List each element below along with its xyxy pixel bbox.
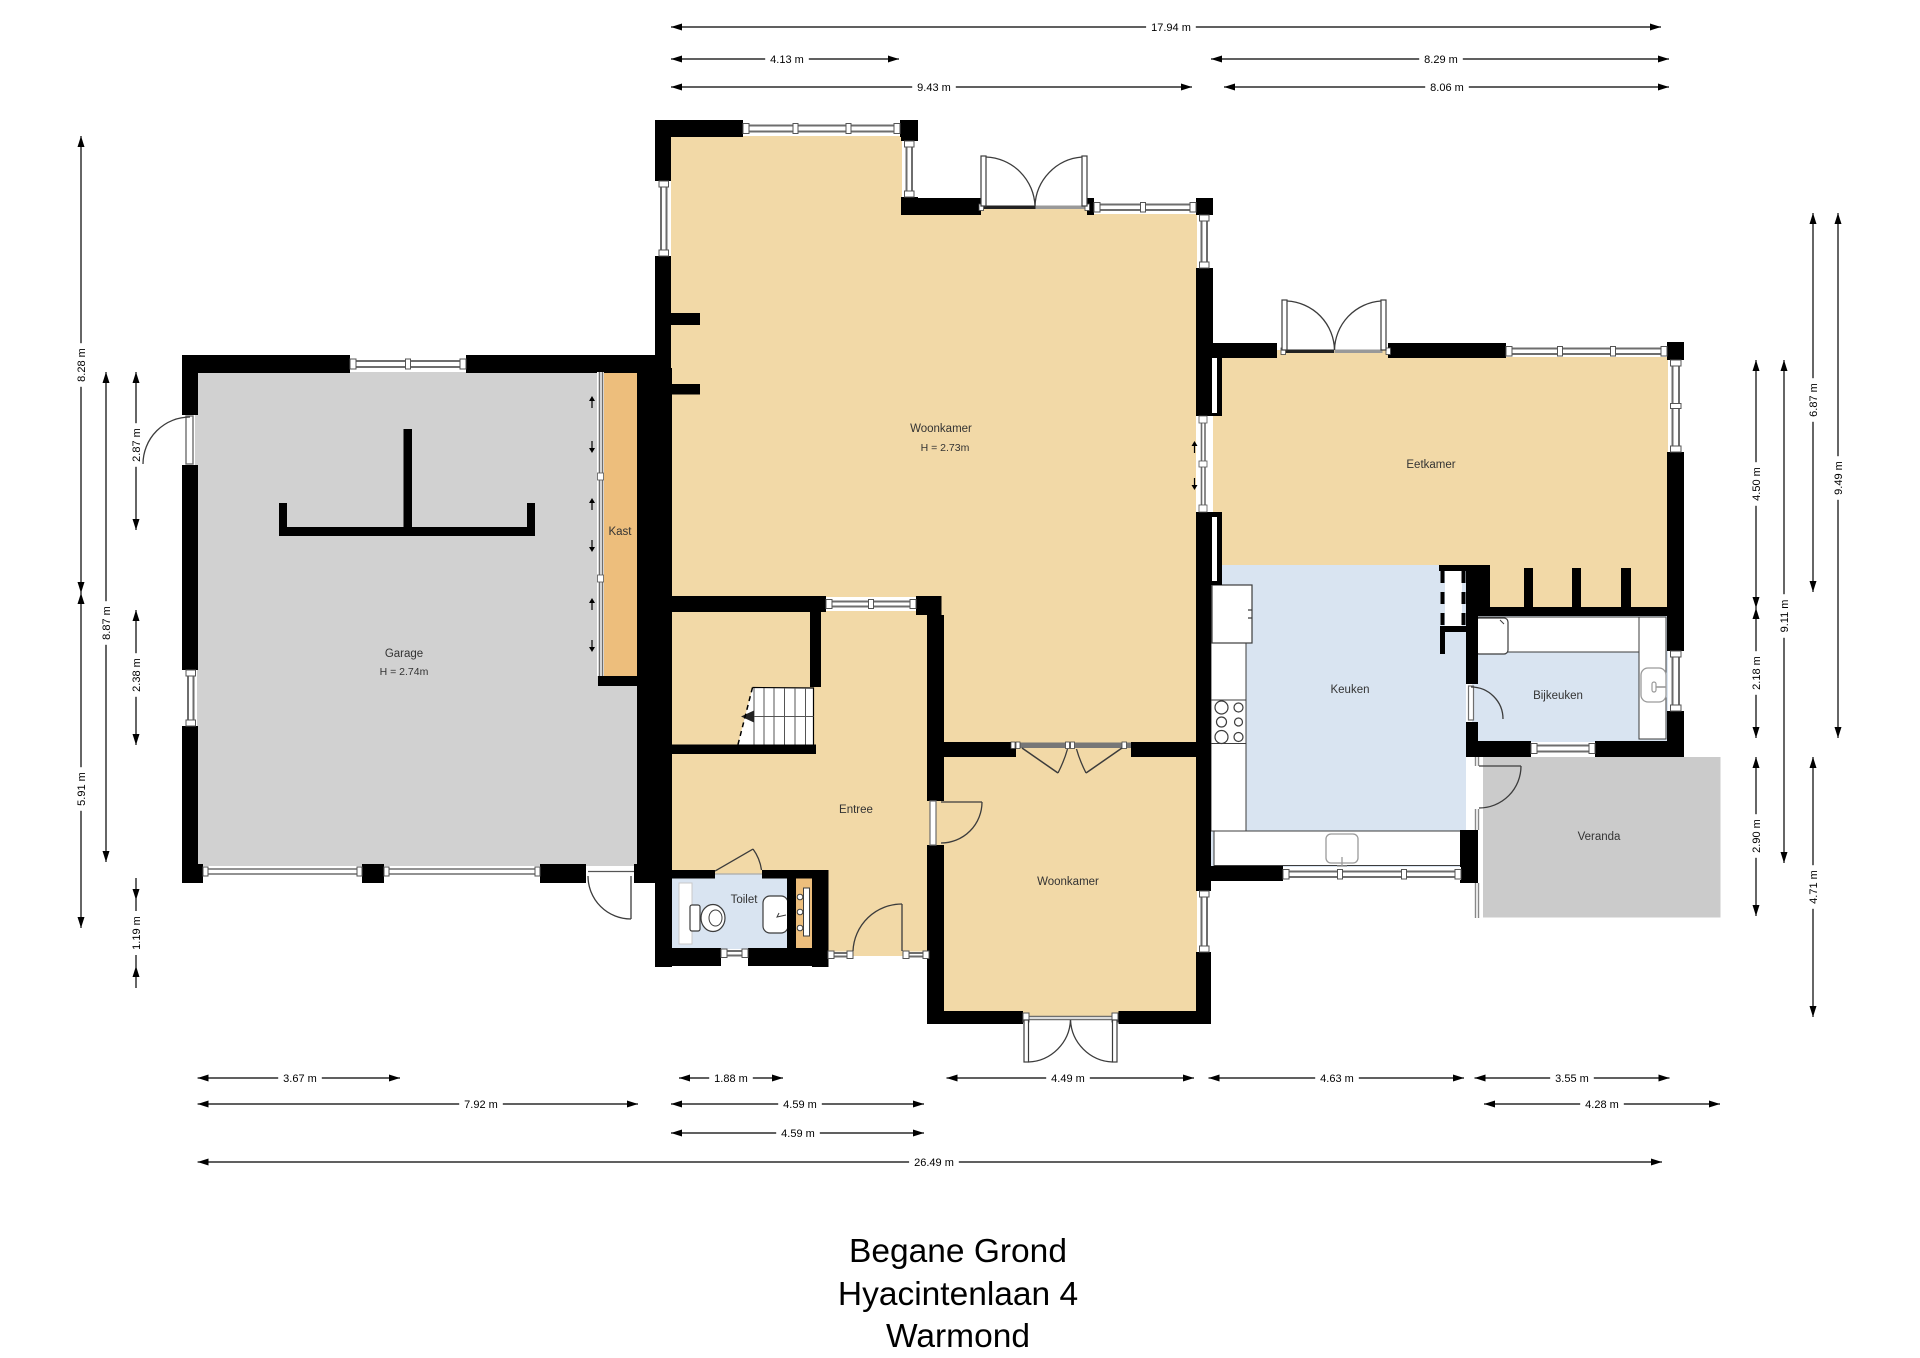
svg-text:26.49 m: 26.49 m [914,1157,954,1169]
svg-text:1.88 m: 1.88 m [714,1073,748,1085]
svg-text:2.38 m: 2.38 m [131,658,143,692]
svg-text:2.18 m: 2.18 m [1751,656,1763,690]
svg-text:Begane Grond: Begane Grond [849,1233,1067,1270]
svg-text:6.87 m: 6.87 m [1808,383,1820,417]
svg-text:Eetkamer: Eetkamer [1406,459,1455,471]
svg-text:4.28 m: 4.28 m [1585,1099,1619,1111]
svg-text:1.19 m: 1.19 m [131,916,143,950]
svg-text:4.49 m: 4.49 m [1051,1073,1085,1085]
svg-text:5.91 m: 5.91 m [76,772,88,806]
svg-text:4.63 m: 4.63 m [1320,1073,1354,1085]
svg-text:Keuken: Keuken [1330,684,1369,696]
svg-text:9.49 m: 9.49 m [1833,461,1845,495]
svg-text:Warmond: Warmond [886,1318,1030,1355]
svg-text:9.11 m: 9.11 m [1779,600,1791,633]
svg-text:Toilet: Toilet [731,894,759,906]
svg-text:Kast: Kast [608,526,632,538]
svg-text:3.55 m: 3.55 m [1555,1073,1589,1085]
svg-text:3.67 m: 3.67 m [283,1073,317,1085]
svg-text:Bijkeuken: Bijkeuken [1533,690,1583,702]
svg-text:H = 2.73m: H = 2.73m [921,442,970,454]
svg-text:Entree: Entree [839,804,873,816]
svg-text:17.94 m: 17.94 m [1151,22,1191,34]
svg-text:Woonkamer: Woonkamer [1037,876,1099,888]
svg-text:8.29 m: 8.29 m [1424,54,1458,66]
svg-text:4.59 m: 4.59 m [781,1128,815,1140]
svg-text:4.59 m: 4.59 m [783,1099,817,1111]
svg-text:8.06 m: 8.06 m [1430,82,1464,94]
svg-text:8.28 m: 8.28 m [76,348,88,382]
svg-text:H = 2.74m: H = 2.74m [380,666,429,678]
svg-text:2.87 m: 2.87 m [131,428,143,462]
svg-text:Woonkamer: Woonkamer [910,423,972,435]
svg-text:Veranda: Veranda [1578,831,1621,843]
svg-text:Garage: Garage [385,648,423,660]
svg-text:4.50 m: 4.50 m [1751,467,1763,501]
svg-text:4.71 m: 4.71 m [1808,870,1820,904]
svg-text:Hyacintenlaan 4: Hyacintenlaan 4 [838,1276,1078,1313]
svg-text:7.92 m: 7.92 m [464,1099,498,1111]
svg-text:8.87 m: 8.87 m [101,606,113,640]
svg-text:4.13 m: 4.13 m [770,54,804,66]
svg-text:9.43 m: 9.43 m [917,82,951,94]
svg-text:2.90 m: 2.90 m [1751,819,1763,853]
